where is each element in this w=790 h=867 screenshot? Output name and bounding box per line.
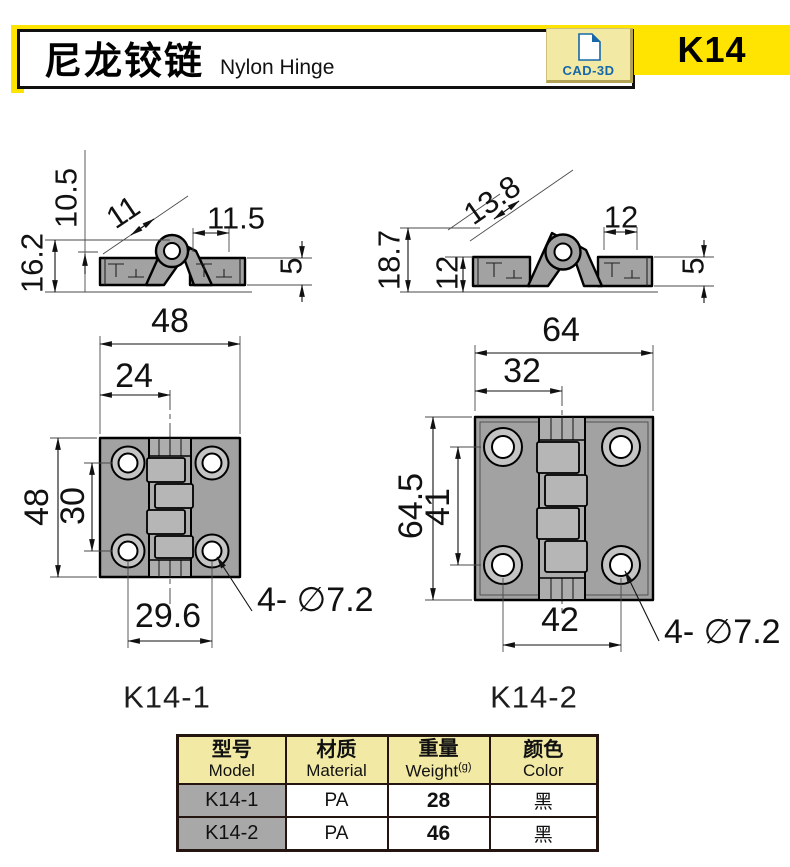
spec-table: 型号 Model 材质 Material 重量 Weight(g) 颜色 Col… xyxy=(176,734,599,852)
side-view-k14-2: 18.7 12 13.8 12 5 xyxy=(372,168,715,303)
side-view-k14-1: 16.2 10.5 11 11.5 5 xyxy=(15,150,313,302)
cell-color: 黑 xyxy=(490,784,598,817)
dim-label: 64 xyxy=(542,311,580,349)
dim-label: 10.5 xyxy=(49,168,84,228)
col-header-weight-zh: 重量 xyxy=(389,738,489,761)
dim-label: 41 xyxy=(419,488,457,526)
dim-label-holes: 4- ∅7.2 xyxy=(664,613,781,651)
dim-label: 30 xyxy=(54,487,92,525)
col-header-material: 材质 Material xyxy=(286,736,388,785)
col-header-material-zh: 材质 xyxy=(287,739,387,762)
cell-model: K14-2 xyxy=(178,817,286,851)
col-header-model-zh: 型号 xyxy=(179,739,285,762)
col-header-model: 型号 Model xyxy=(178,736,286,785)
cell-material: PA xyxy=(286,784,388,817)
cell-weight: 28 xyxy=(388,784,490,817)
dim-label: 5 xyxy=(676,257,711,274)
dim-label-holes: 4- ∅7.2 xyxy=(257,581,374,619)
dim-label: 48 xyxy=(151,302,189,340)
col-header-color-en: Color xyxy=(491,762,597,781)
dim-label: 48 xyxy=(18,488,56,526)
table-row: K14-1 PA 28 黑 xyxy=(178,784,598,817)
dim-label: 24 xyxy=(115,357,153,395)
dim-label: 11 xyxy=(100,188,146,235)
dim-label: 13.8 xyxy=(457,168,527,231)
table-row: K14-2 PA 46 黑 xyxy=(178,817,598,851)
weight-unit: (g) xyxy=(458,761,471,773)
col-header-weight: 重量 Weight(g) xyxy=(388,736,490,785)
cell-weight: 46 xyxy=(388,817,490,851)
cell-model: K14-1 xyxy=(178,784,286,817)
cell-color: 黑 xyxy=(490,817,598,851)
col-header-weight-en: Weight(g) xyxy=(389,761,489,781)
col-header-color-zh: 颜色 xyxy=(491,739,597,762)
front-view-k14-2: 64 32 64.5 41 42 4- ∅7.2 K14-2 xyxy=(392,311,781,715)
spec-table-header-row: 型号 Model 材质 Material 重量 Weight(g) 颜色 Col… xyxy=(178,736,598,785)
catalog-page: 尼龙铰链 Nylon Hinge CAD-3D K14 xyxy=(0,0,790,867)
dim-label: 11.5 xyxy=(207,201,265,236)
dim-label: 32 xyxy=(503,352,541,390)
dim-label: 16.2 xyxy=(15,233,50,293)
col-header-model-en: Model xyxy=(179,762,285,781)
col-header-color: 颜色 Color xyxy=(490,736,598,785)
variant-label-k14-1: K14-1 xyxy=(123,680,211,715)
dim-label: 12 xyxy=(430,256,465,290)
variant-label-k14-2: K14-2 xyxy=(490,680,578,715)
dim-label: 5 xyxy=(274,257,309,274)
technical-drawings: 16.2 10.5 11 11.5 5 18.7 12 13.8 12 xyxy=(0,0,790,734)
cell-material: PA xyxy=(286,817,388,851)
front-view-k14-1: 48 24 48 30 29.6 4- ∅7.2 K14-1 xyxy=(18,302,374,715)
col-header-material-en: Material xyxy=(287,762,387,781)
dim-label: 42 xyxy=(541,601,579,639)
dim-label: 18.7 xyxy=(372,230,407,290)
dim-label: 12 xyxy=(604,200,638,235)
dim-label: 29.6 xyxy=(135,597,201,635)
